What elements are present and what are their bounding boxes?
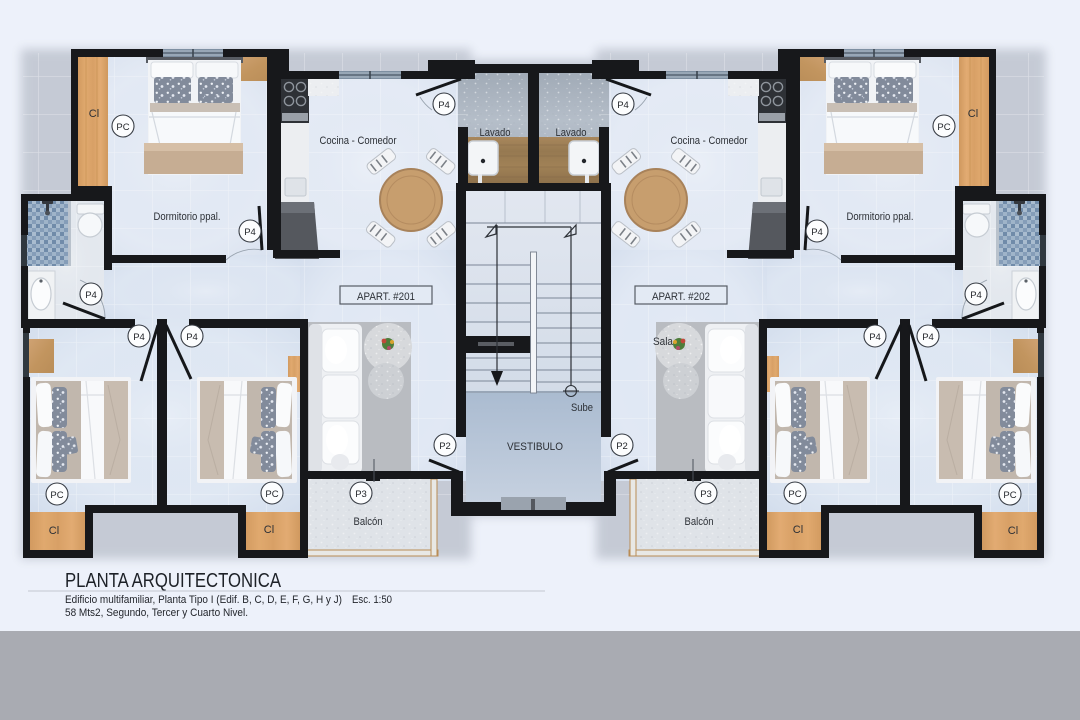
svg-text:Cl: Cl	[968, 108, 978, 120]
svg-text:Cocina - Comedor: Cocina - Comedor	[320, 135, 397, 147]
svg-text:Balcón: Balcón	[354, 516, 383, 528]
svg-text:Sala: Sala	[653, 336, 674, 348]
svg-text:Lavado: Lavado	[480, 127, 511, 139]
svg-text:APART. #202: APART. #202	[652, 291, 710, 303]
svg-text:P4: P4	[244, 227, 256, 238]
svg-text:Lavado: Lavado	[556, 127, 587, 139]
svg-text:Cl: Cl	[1008, 525, 1018, 537]
svg-text:P4: P4	[869, 332, 881, 343]
svg-text:Cl: Cl	[49, 525, 59, 537]
svg-text:P4: P4	[811, 227, 823, 238]
svg-text:Cocina - Comedor: Cocina - Comedor	[671, 135, 748, 147]
svg-text:P4: P4	[617, 100, 629, 111]
svg-text:PC: PC	[1003, 490, 1016, 501]
svg-text:PLANTA ARQUITECTONICA: PLANTA ARQUITECTONICA	[65, 570, 282, 592]
svg-text:Sube: Sube	[571, 402, 593, 414]
svg-text:Cl: Cl	[793, 524, 803, 536]
svg-text:P4: P4	[186, 332, 198, 343]
svg-text:Balcón: Balcón	[685, 516, 714, 528]
svg-text:PC: PC	[50, 490, 63, 501]
svg-text:VESTIBULO: VESTIBULO	[507, 441, 563, 453]
svg-text:PC: PC	[788, 489, 801, 500]
svg-text:Dormitorio ppal.: Dormitorio ppal.	[154, 211, 221, 223]
svg-text:PC: PC	[265, 489, 278, 500]
svg-text:Dormitorio ppal.: Dormitorio ppal.	[847, 211, 914, 223]
svg-text:58 Mts2, Segundo, Tercer y Cua: 58 Mts2, Segundo, Tercer y Cuarto Nivel.	[65, 607, 248, 619]
svg-text:P4: P4	[85, 290, 97, 301]
svg-text:PC: PC	[116, 122, 129, 133]
svg-text:P4: P4	[922, 332, 934, 343]
svg-text:P2: P2	[439, 441, 451, 452]
svg-text:P4: P4	[438, 100, 450, 111]
svg-text:Esc. 1:50: Esc. 1:50	[352, 594, 392, 606]
svg-text:P4: P4	[133, 332, 145, 343]
svg-text:Cl: Cl	[264, 524, 274, 536]
svg-text:Cl: Cl	[89, 108, 99, 120]
svg-text:PC: PC	[937, 122, 950, 133]
svg-text:Edificio multifamiliar, Planta: Edificio multifamiliar, Planta Tipo I (E…	[65, 594, 342, 606]
svg-text:P4: P4	[970, 290, 982, 301]
svg-text:APART. #201: APART. #201	[357, 291, 415, 303]
svg-text:P3: P3	[700, 489, 712, 500]
svg-text:P2: P2	[616, 441, 628, 452]
svg-text:P3: P3	[355, 489, 367, 500]
